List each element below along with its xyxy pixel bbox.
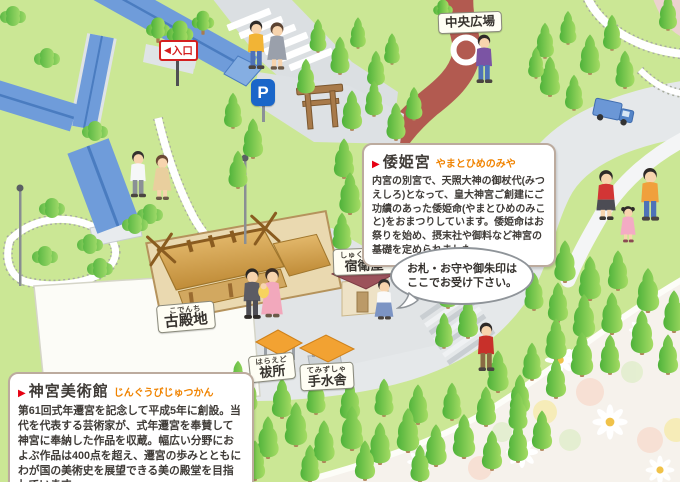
entrance-sign: ◀ 入口 — [159, 40, 198, 61]
label-kodenchi-text: 古殿地 — [164, 312, 209, 331]
speech-bubble-tail — [396, 292, 422, 312]
label-temizusha-text: 手水舎 — [307, 373, 348, 388]
red-flag-icon: ▶ — [18, 388, 26, 399]
yamatohime-ruby: やまとひめのみや — [436, 155, 516, 170]
yamatohime-description: 内宮の別宮で、天照大神の御杖代(みつえしろ)となって、皇大神宮ご創建にご功績のあ… — [372, 175, 546, 258]
speech-line-2: ここでお受け下さい。 — [407, 276, 517, 290]
label-temizusha: てみずしゃ 手水舎 — [299, 362, 354, 392]
priest-speech-bubble: お札・お守や御朱印は ここでお受け下さい。 — [390, 247, 534, 305]
red-flag-icon: ▶ — [372, 159, 380, 170]
parking-sign-pole — [262, 105, 265, 122]
speech-line-1: お札・お守や御朱印は — [407, 262, 517, 276]
label-haraedo: はらえど 祓所 — [248, 352, 297, 384]
yamatohime-title-row: ▶ 倭姫宮 やまとひめのみや — [372, 151, 546, 172]
museum-info-box: ▶ 神宮美術館 じんぐうびじゅつかん 第61回式年遷宮を記念して平成5年に創設。… — [8, 372, 254, 482]
label-central-plaza: 中央広場 — [438, 11, 503, 34]
museum-title: 神宮美術館 — [29, 380, 109, 401]
left-arrow-icon: ◀ — [164, 45, 171, 56]
museum-title-row: ▶ 神宮美術館 じんぐうびじゅつかん — [18, 380, 244, 401]
label-haraedo-text: 祓所 — [256, 363, 289, 380]
entrance-sign-pole — [176, 58, 179, 86]
yamatohime-title: 倭姫宮 — [383, 151, 431, 172]
entrance-sign-text: 入口 — [172, 43, 193, 58]
parking-sign: P — [251, 79, 275, 106]
illustrated-shrine-map: 中央広場 こでんち 古殿地 しゅくえいや 宿衛屋 はらえど 祓所 てみずしゃ 手… — [0, 0, 680, 482]
museum-description: 第61回式年遷宮を記念して平成5年に創設。当代を代表する芸術家が、式年遷宮を奉賛… — [18, 404, 244, 482]
label-kodenchi: こでんち 古殿地 — [156, 301, 216, 334]
museum-ruby: じんぐうびじゅつかん — [114, 384, 214, 399]
